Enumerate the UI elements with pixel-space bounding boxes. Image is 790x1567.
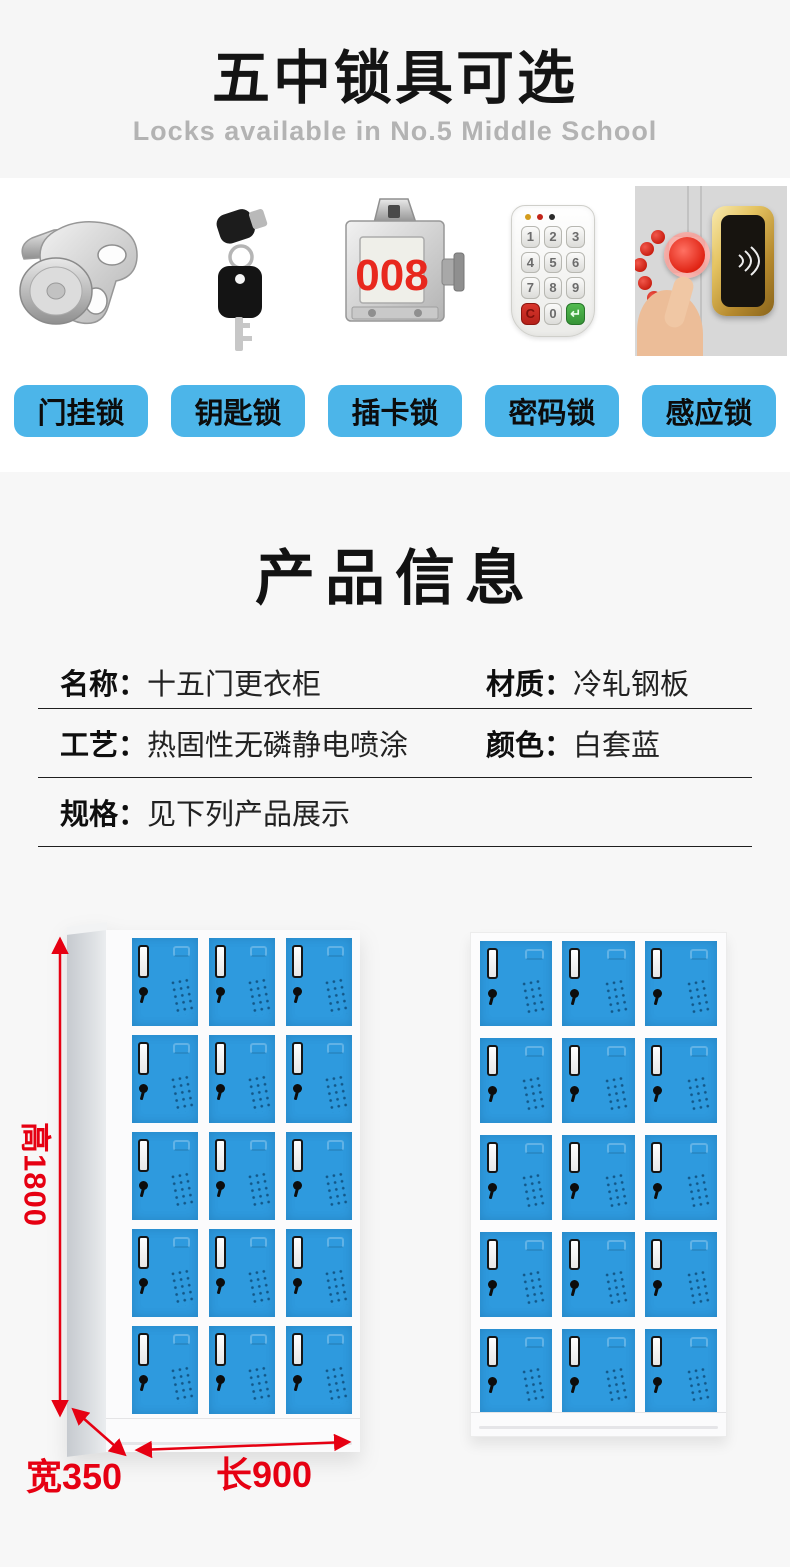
- keyhole-icon: [216, 1278, 225, 1287]
- vent-holes: [685, 978, 713, 1017]
- locker-door: [209, 1035, 275, 1123]
- vent-holes: [520, 1075, 548, 1114]
- lock-type-button-key[interactable]: 钥匙锁: [171, 385, 305, 437]
- lock-type-button-card[interactable]: 插卡锁: [328, 385, 462, 437]
- keyhole-icon: [216, 987, 225, 996]
- locker-door: [480, 1038, 552, 1123]
- vent-holes: [246, 1364, 272, 1404]
- keyhole-icon: [293, 1278, 302, 1287]
- name-card-slot: [651, 1239, 662, 1270]
- locker-door: [209, 1326, 275, 1414]
- vent-holes: [520, 978, 548, 1017]
- handle-recess: [173, 1334, 190, 1345]
- keyhole-icon: [139, 1181, 148, 1190]
- locker-door: [562, 1232, 634, 1317]
- spec-label: 工艺：: [60, 722, 147, 764]
- wristband-bead: [638, 276, 652, 290]
- spec-label: 规格：: [60, 791, 147, 833]
- led-black-icon: [549, 214, 555, 220]
- locker-right-front: [470, 932, 727, 1437]
- vent-holes: [169, 1267, 195, 1307]
- vent-holes: [246, 1073, 272, 1113]
- vent-holes: [169, 1364, 195, 1404]
- locker-door: [209, 1132, 275, 1220]
- door-grid: [480, 941, 717, 1414]
- vent-holes: [246, 976, 272, 1016]
- name-card-slot: [651, 1336, 662, 1367]
- reader-face: [721, 215, 765, 307]
- spec-value: 白套蓝: [573, 722, 660, 764]
- name-card-slot: [651, 948, 662, 979]
- lock-type-button-keypad[interactable]: 密码锁: [485, 385, 619, 437]
- rfid-fob: [664, 232, 710, 278]
- locker-door: [645, 1038, 717, 1123]
- vent-holes: [603, 1269, 631, 1308]
- keyhole-icon: [570, 1280, 579, 1289]
- keypad-keys: 123456789C0↵: [521, 226, 585, 325]
- card-lock-image: 008: [316, 182, 474, 360]
- vent-holes: [685, 1366, 713, 1405]
- locker-door: [562, 1038, 634, 1123]
- handle-recess: [690, 1337, 709, 1348]
- vent-holes: [520, 1172, 548, 1211]
- locker-door: [645, 1232, 717, 1317]
- keyhole-icon: [293, 1181, 302, 1190]
- vent-holes: [323, 1170, 349, 1210]
- rfid-lock-icon: [635, 186, 787, 356]
- keypad-key-C: C: [521, 303, 540, 326]
- handle-recess: [607, 949, 626, 960]
- locker-door: [132, 1035, 198, 1123]
- spec-value: 热固性无磷静电喷涂: [147, 722, 408, 764]
- spec-row: 名称： 十五门更衣柜 材质： 冷轧钢板: [38, 655, 752, 709]
- wristband-bead: [651, 230, 665, 244]
- keypad-key-6: 6: [566, 252, 585, 274]
- hasp-lock-icon: [4, 189, 154, 354]
- keyhole-icon: [653, 1086, 662, 1095]
- vent-holes: [603, 978, 631, 1017]
- name-card-slot: [292, 1139, 303, 1172]
- handle-recess: [607, 1337, 626, 1348]
- keyhole-icon: [570, 1377, 579, 1386]
- handle-recess: [327, 946, 344, 957]
- dimension-height-label: 高1800: [16, 1093, 61, 1257]
- handle-recess: [690, 1046, 709, 1057]
- handle-recess: [250, 1237, 267, 1248]
- locker-door: [132, 1326, 198, 1414]
- cabinet-base: [471, 1412, 726, 1436]
- wristband-bead: [640, 242, 654, 256]
- vent-holes: [246, 1170, 272, 1210]
- spec-label: 材质：: [486, 661, 573, 703]
- locker-left-perspective: [0, 900, 420, 1500]
- keyhole-icon: [139, 1278, 148, 1287]
- handle-recess: [607, 1046, 626, 1057]
- keypad-key-3: 3: [566, 226, 585, 248]
- keypad-key-5: 5: [544, 252, 563, 274]
- vent-holes: [323, 1267, 349, 1307]
- keyhole-icon: [139, 1084, 148, 1093]
- keypad-key-0: 0: [544, 303, 563, 326]
- keyhole-icon: [653, 1183, 662, 1192]
- vent-holes: [323, 1073, 349, 1113]
- keyhole-icon: [653, 989, 662, 998]
- handle-recess: [690, 1143, 709, 1154]
- name-card-slot: [215, 1139, 226, 1172]
- name-card-slot: [138, 1139, 149, 1172]
- locker-door: [562, 941, 634, 1026]
- name-card-slot: [292, 1042, 303, 1075]
- name-card-slot: [215, 1333, 226, 1366]
- name-card-slot: [487, 948, 498, 979]
- section-title: 产品信息: [0, 472, 790, 617]
- spec-label: 颜色：: [486, 722, 573, 764]
- cabinet-front-face: [106, 930, 360, 1452]
- handle-recess: [525, 1240, 544, 1251]
- keyhole-icon: [216, 1375, 225, 1384]
- keypad-lock-icon: 123456789C0↵: [511, 205, 595, 337]
- locker-door: [480, 1232, 552, 1317]
- name-card-slot: [569, 948, 580, 979]
- name-card-slot: [569, 1045, 580, 1076]
- keyhole-icon: [139, 1375, 148, 1384]
- keyhole-icon: [488, 989, 497, 998]
- plinth-line: [479, 1426, 718, 1429]
- gold-rfid-reader: [712, 206, 774, 316]
- page-title: 五中锁具可选: [0, 0, 790, 114]
- name-card-slot: [215, 1042, 226, 1075]
- locker-door: [132, 938, 198, 1026]
- name-card-slot: [569, 1336, 580, 1367]
- handle-recess: [250, 946, 267, 957]
- handle-recess: [607, 1143, 626, 1154]
- keyhole-icon: [488, 1183, 497, 1192]
- vent-holes: [603, 1366, 631, 1405]
- product-info-section: 产品信息 名称： 十五门更衣柜 材质： 冷轧钢板 工艺： 热固性无磷静电喷涂 颜: [0, 472, 790, 1567]
- lock-images-row: 008 123456789C0↵: [0, 182, 790, 360]
- lock-type-button-hasp[interactable]: 门挂锁: [14, 385, 148, 437]
- name-card-slot: [569, 1142, 580, 1173]
- page-subtitle: Locks available in No.5 Middle School: [0, 116, 790, 147]
- name-card-slot: [487, 1336, 498, 1367]
- handle-recess: [173, 1043, 190, 1054]
- spec-value: 十五门更衣柜: [147, 661, 321, 703]
- name-card-slot: [569, 1239, 580, 1270]
- keyhole-icon: [488, 1280, 497, 1289]
- vent-holes: [323, 976, 349, 1016]
- lock-type-button-rfid[interactable]: 感应锁: [642, 385, 776, 437]
- keypad-key-1: 1: [521, 226, 540, 248]
- handle-recess: [525, 949, 544, 960]
- vent-holes: [169, 1170, 195, 1210]
- vent-holes: [169, 976, 195, 1016]
- spec-table: 名称： 十五门更衣柜 材质： 冷轧钢板 工艺： 热固性无磷静电喷涂 颜色： 白套…: [38, 655, 752, 847]
- cabinet-side-face: [67, 930, 107, 1457]
- led-red-icon: [537, 214, 543, 220]
- keyhole-icon: [216, 1084, 225, 1093]
- locker-showcase: 高1800 宽350 长900: [0, 900, 790, 1567]
- handle-recess: [327, 1140, 344, 1151]
- dimension-width-label: 宽350: [26, 1448, 122, 1500]
- name-card-slot: [487, 1239, 498, 1270]
- name-card-slot: [651, 1142, 662, 1173]
- rfid-lock-image: [632, 182, 790, 360]
- hero-section: 五中锁具可选 Locks available in No.5 Middle Sc…: [0, 0, 790, 178]
- name-card-slot: [138, 1042, 149, 1075]
- handle-recess: [327, 1334, 344, 1345]
- locker-door: [480, 941, 552, 1026]
- keypad-leds: [525, 214, 555, 220]
- locker-door: [209, 1229, 275, 1317]
- keyhole-icon: [653, 1377, 662, 1386]
- handle-recess: [173, 1140, 190, 1151]
- rfid-wave-icon: [721, 215, 765, 307]
- spec-size: 规格： 见下列产品展示: [38, 791, 486, 833]
- spec-process: 工艺： 热固性无磷静电喷涂: [38, 722, 486, 764]
- door-grid: [132, 938, 352, 1414]
- keyhole-icon: [570, 1183, 579, 1192]
- locker-door: [645, 941, 717, 1026]
- key-lock-image: [158, 182, 316, 360]
- handle-recess: [173, 1237, 190, 1248]
- handle-recess: [690, 1240, 709, 1251]
- keypad-key-2: 2: [544, 226, 563, 248]
- handle-recess: [327, 1043, 344, 1054]
- locker-door: [645, 1135, 717, 1220]
- dimension-length-label: 长900: [216, 1446, 312, 1498]
- name-card-slot: [215, 1236, 226, 1269]
- handle-recess: [250, 1140, 267, 1151]
- keyhole-icon: [488, 1377, 497, 1386]
- locker-door: [132, 1229, 198, 1317]
- handle-recess: [525, 1046, 544, 1057]
- name-card-slot: [487, 1142, 498, 1173]
- name-card-slot: [138, 1236, 149, 1269]
- keypad-key-9: 9: [566, 277, 585, 299]
- vent-holes: [603, 1075, 631, 1114]
- spec-value: 见下列产品展示: [147, 791, 350, 833]
- vent-holes: [323, 1364, 349, 1404]
- lock-type-buttons-row: 门挂锁 钥匙锁 插卡锁 密码锁 感应锁: [14, 385, 776, 437]
- locker-door: [480, 1329, 552, 1414]
- handle-recess: [250, 1043, 267, 1054]
- name-card-slot: [292, 1333, 303, 1366]
- keypad-key-7: 7: [521, 277, 540, 299]
- lock-number-display: 008: [355, 251, 428, 300]
- vent-holes: [685, 1172, 713, 1211]
- handle-recess: [173, 946, 190, 957]
- locker-door: [286, 1132, 352, 1220]
- spec-material: 材质： 冷轧钢板: [486, 661, 752, 703]
- keypad-lock-image: 123456789C0↵: [474, 182, 632, 360]
- spec-value: 冷轧钢板: [573, 661, 689, 703]
- keyhole-icon: [216, 1181, 225, 1190]
- product-detail-page: 五中锁具可选 Locks available in No.5 Middle Sc…: [0, 0, 790, 1567]
- name-card-slot: [215, 945, 226, 978]
- locker-door: [286, 1229, 352, 1317]
- handle-recess: [525, 1337, 544, 1348]
- lock-options-section: 008 123456789C0↵: [0, 178, 790, 472]
- name-card-slot: [138, 945, 149, 978]
- keyhole-icon: [139, 987, 148, 996]
- keyhole-icon: [488, 1086, 497, 1095]
- handle-recess: [250, 1334, 267, 1345]
- name-card-slot: [138, 1333, 149, 1366]
- handle-recess: [327, 1237, 344, 1248]
- spec-color: 颜色： 白套蓝: [486, 722, 752, 764]
- vent-holes: [685, 1075, 713, 1114]
- hasp-lock-image: [0, 182, 158, 360]
- plinth-line: [114, 1442, 352, 1445]
- locker-door: [286, 938, 352, 1026]
- keyhole-icon: [293, 1084, 302, 1093]
- name-card-slot: [651, 1045, 662, 1076]
- locker-door: [562, 1329, 634, 1414]
- keypad-key-↵: ↵: [566, 303, 585, 326]
- keyhole-icon: [293, 1375, 302, 1384]
- keyhole-icon: [570, 989, 579, 998]
- locker-door: [480, 1135, 552, 1220]
- vent-holes: [246, 1267, 272, 1307]
- vent-holes: [685, 1269, 713, 1308]
- key-lock-icon: [162, 189, 312, 354]
- locker-door: [132, 1132, 198, 1220]
- name-card-slot: [487, 1045, 498, 1076]
- locker-door: [286, 1326, 352, 1414]
- handle-recess: [607, 1240, 626, 1251]
- locker-door: [645, 1329, 717, 1414]
- spec-row: 规格： 见下列产品展示: [38, 778, 752, 847]
- handle-recess: [525, 1143, 544, 1154]
- spec-row: 工艺： 热固性无磷静电喷涂 颜色： 白套蓝: [38, 709, 752, 778]
- vent-holes: [520, 1366, 548, 1405]
- vent-holes: [603, 1172, 631, 1211]
- vent-holes: [520, 1269, 548, 1308]
- name-card-slot: [292, 945, 303, 978]
- name-card-slot: [292, 1236, 303, 1269]
- spec-name: 名称： 十五门更衣柜: [38, 661, 486, 703]
- keyhole-icon: [653, 1280, 662, 1289]
- spec-label: 名称：: [60, 661, 147, 703]
- locker-door: [562, 1135, 634, 1220]
- keypad-key-4: 4: [521, 252, 540, 274]
- vent-holes: [169, 1073, 195, 1113]
- keyhole-icon: [570, 1086, 579, 1095]
- keypad-key-8: 8: [544, 277, 563, 299]
- led-amber-icon: [525, 214, 531, 220]
- card-lock-icon: 008: [320, 189, 470, 354]
- locker-door: [209, 938, 275, 1026]
- wristband-bead: [635, 258, 647, 272]
- keyhole-icon: [293, 987, 302, 996]
- handle-recess: [690, 949, 709, 960]
- locker-door: [286, 1035, 352, 1123]
